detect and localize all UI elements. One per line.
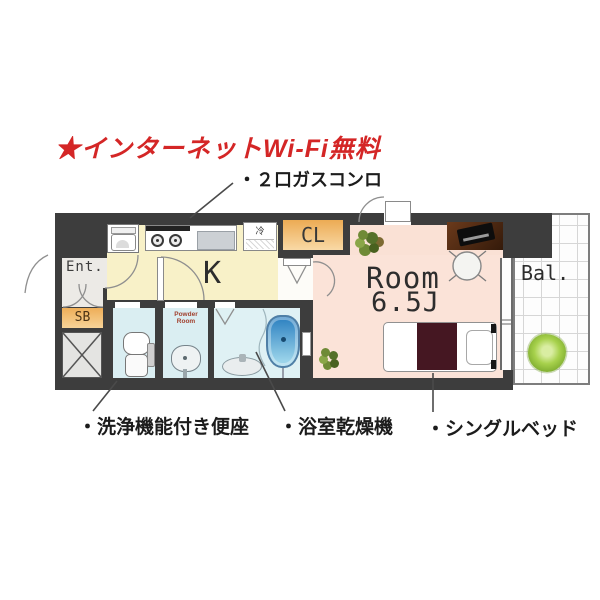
bath-door-gap: [215, 302, 235, 308]
wifi-free-headline: ★インターネットWi-Fi無料: [55, 129, 381, 165]
refrigerator-hatch: [246, 239, 274, 249]
sink-counter: [197, 231, 235, 250]
headboard-mark: [491, 360, 496, 369]
bathtub-drain: [281, 337, 286, 342]
entrance-label: Ent.: [66, 259, 104, 275]
bath-faucet: [239, 354, 246, 362]
gas-stove-note: ・２口ガスコンロ: [238, 166, 382, 192]
refrigerator-space: 冷: [243, 222, 277, 251]
bed-cover: [417, 323, 457, 370]
top-door-leaf: [385, 201, 411, 222]
washlet-panel: [147, 343, 155, 367]
washer-control-panel: [111, 227, 136, 234]
bathtub-icon: [266, 315, 300, 368]
sink-drain: [183, 356, 187, 360]
bath-counter-icon: [222, 357, 262, 376]
kitchen-door-leaf: [157, 257, 164, 301]
balcony-window: [500, 258, 513, 370]
plant-icon: [321, 348, 330, 357]
bath-niche: [302, 332, 311, 356]
floorplan-page: { "annotations": { "wifi": "★インターネットWi-F…: [0, 0, 600, 600]
gas-burner-icon: [151, 234, 164, 247]
single-bed: [383, 322, 497, 372]
plant-icon: [358, 230, 368, 240]
closet-label: CL: [301, 223, 325, 247]
desk: [447, 222, 503, 250]
main-room-size: 6.5J: [371, 287, 440, 318]
toilet-tank: [123, 332, 150, 355]
balcony-label: Bal.: [521, 261, 569, 285]
washer-door-arc: [116, 240, 129, 248]
washing-machine-icon: [107, 224, 139, 253]
closet-box: CL: [283, 220, 343, 250]
toilet-seat: [125, 354, 148, 377]
sink-pedestal: [183, 369, 187, 378]
stove-backsplash: [146, 226, 190, 231]
toilet-door-gap: [115, 302, 140, 308]
powder-sink-icon: [168, 344, 204, 376]
powder-door-gap: [165, 302, 197, 308]
bath-dryer-note: ・浴室乾燥機: [279, 412, 393, 439]
pipe-space: [62, 332, 102, 378]
washlet-note: ・洗浄機能付き便座: [78, 412, 249, 439]
kitchen-counter: [145, 225, 237, 251]
laptop-icon: [457, 222, 496, 246]
powder-room-label: Powder Room: [167, 311, 205, 325]
shoe-box-label: SB: [62, 310, 103, 325]
room-door-leaf: [283, 258, 311, 266]
refrigerator-label: 冷: [244, 224, 276, 237]
kitchen-label: K: [203, 256, 221, 291]
corner-pillar: [513, 213, 552, 258]
headboard-mark: [491, 324, 496, 333]
single-bed-note: ・シングルベッド: [426, 414, 578, 441]
bed-pillow: [466, 330, 493, 365]
toilet-icon: [120, 330, 154, 378]
gas-burner-icon: [169, 234, 182, 247]
